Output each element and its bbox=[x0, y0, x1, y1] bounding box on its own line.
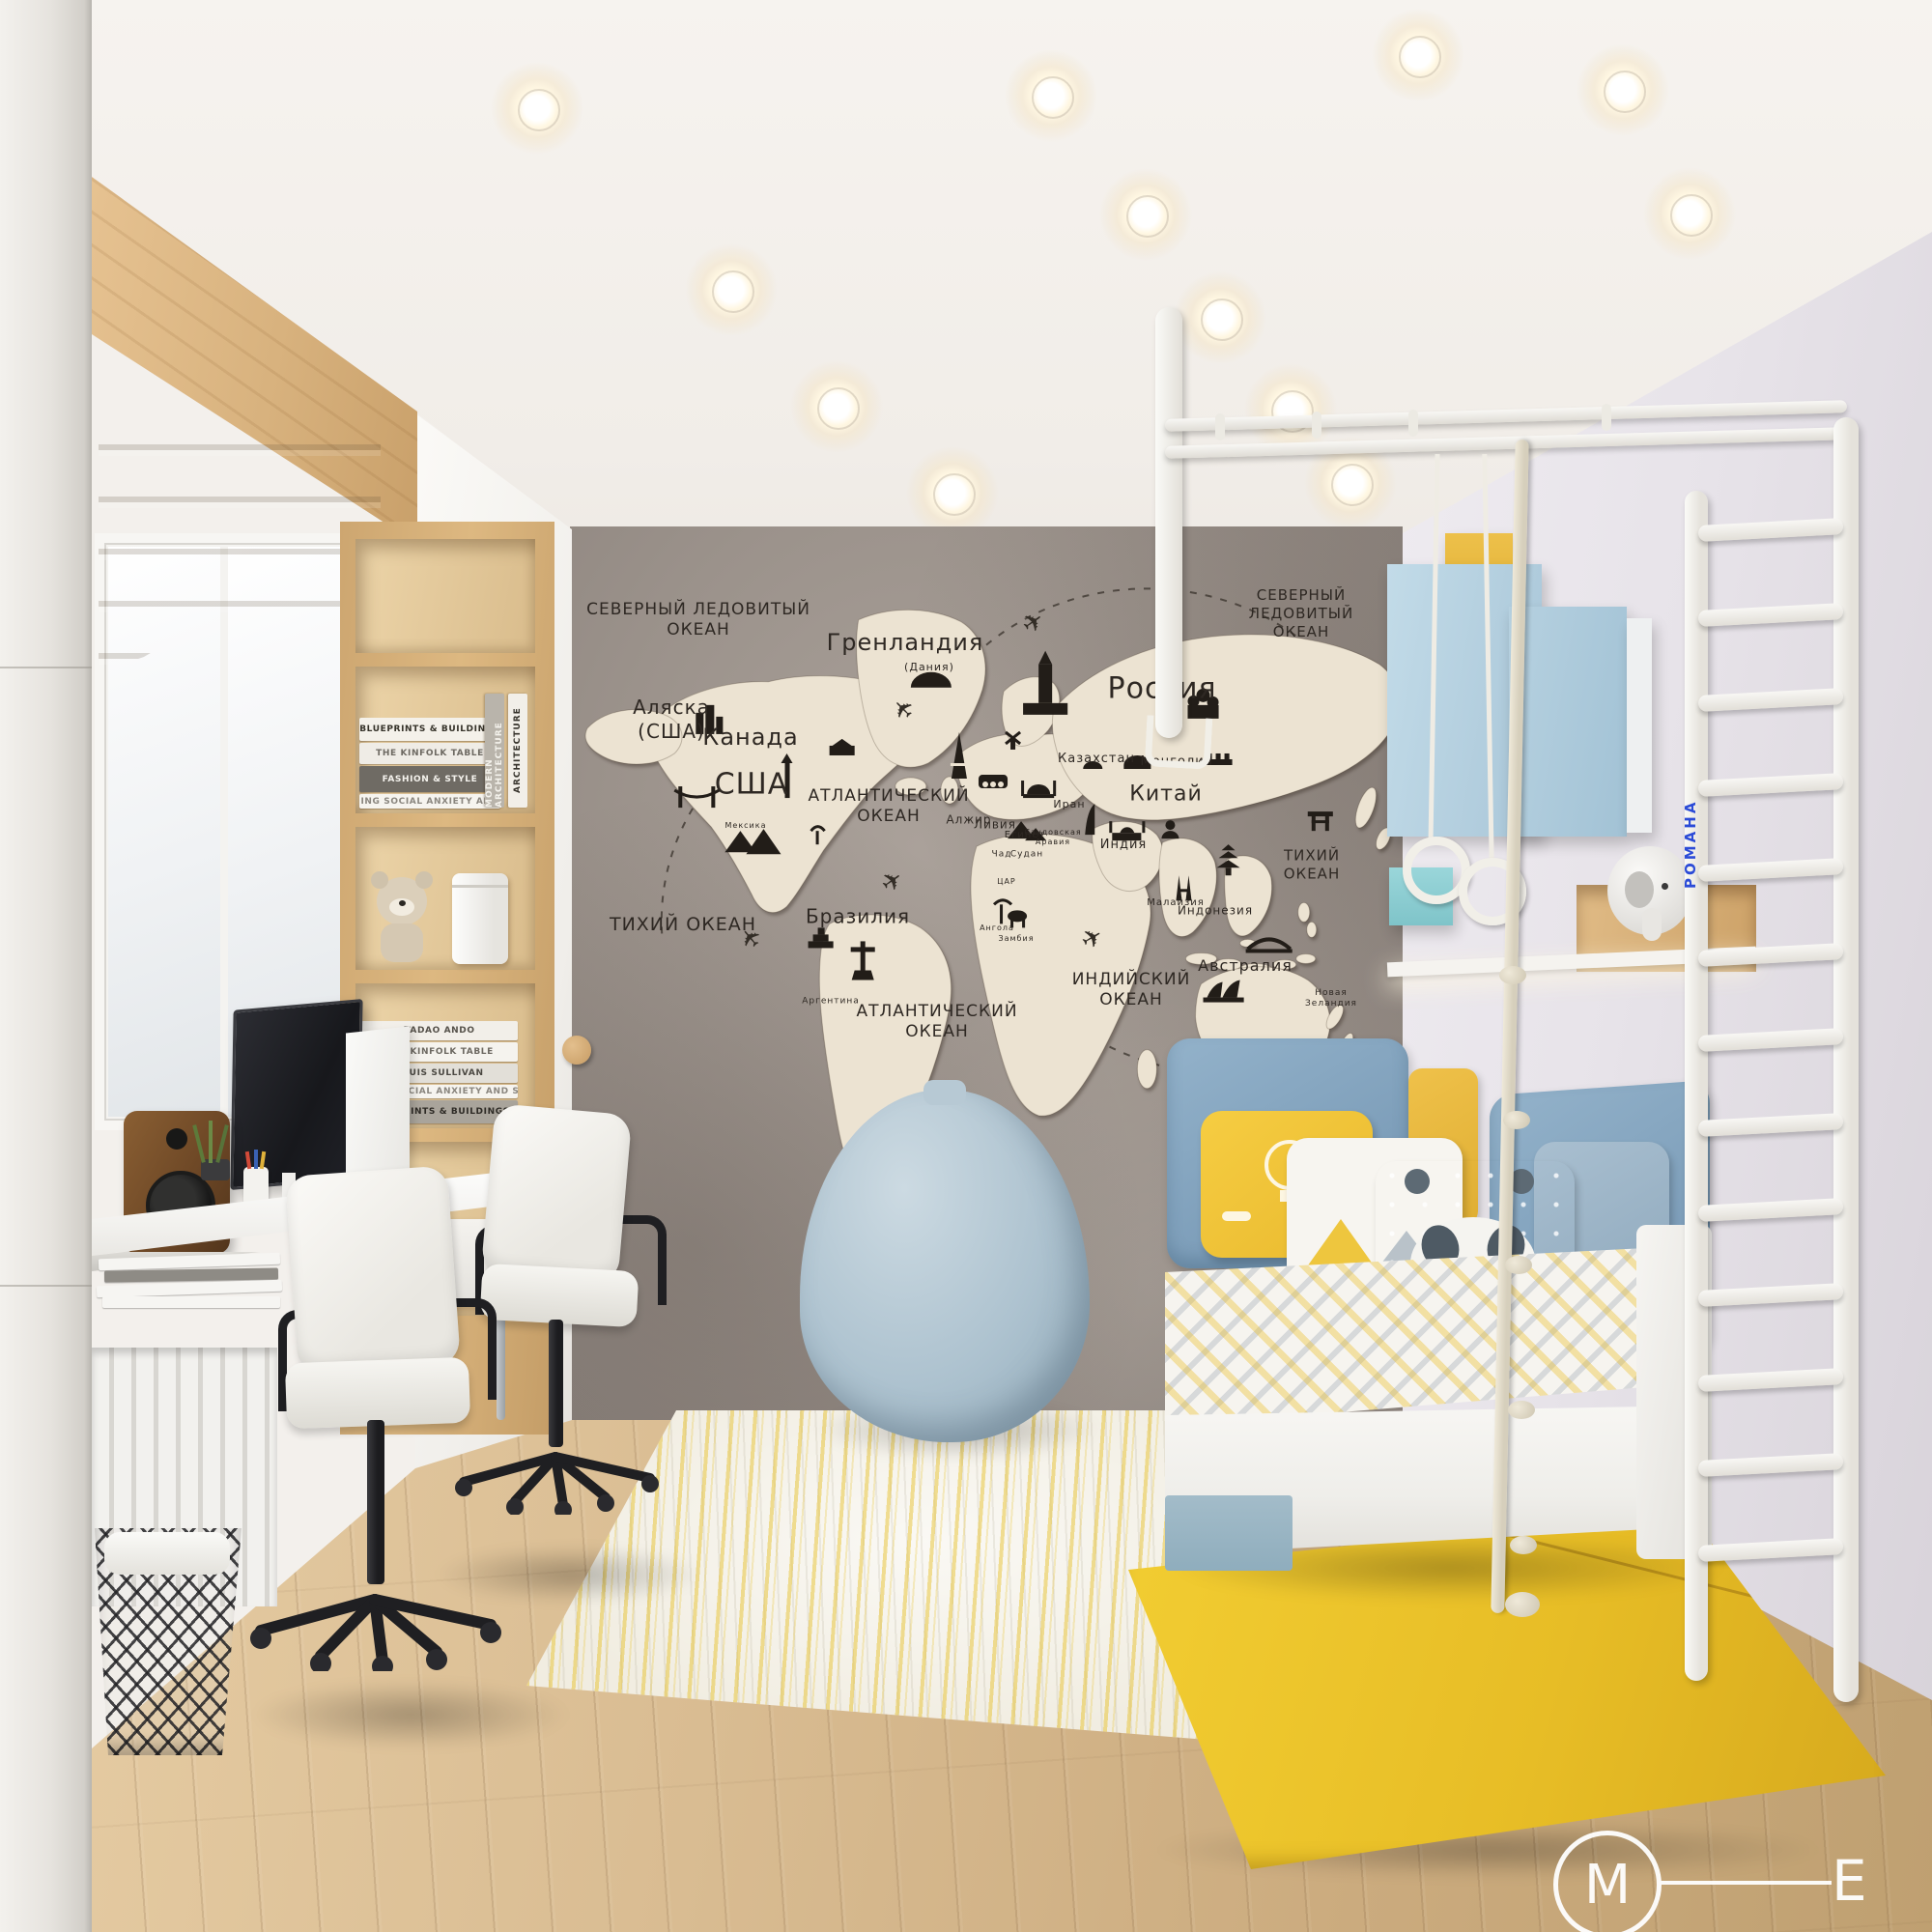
bear-body bbox=[381, 923, 423, 962]
map-label: (Дания) bbox=[904, 661, 954, 674]
scene: СЕВЕРНЫЙ ЛЕДОВИТЫЙ ОКЕАНСЕВЕРНЫЙ ЛЕДОВИТ… bbox=[0, 0, 1932, 1932]
chair-seat bbox=[480, 1264, 639, 1327]
cloud-motif bbox=[1222, 1211, 1251, 1221]
wardrobe-seam bbox=[0, 667, 92, 668]
map-label: ТИХИЙ ОКЕАН bbox=[610, 914, 756, 937]
map-label: ИНДИЙСКИЙ ОКЕАН bbox=[1072, 970, 1191, 1011]
ceiling-spotlight bbox=[1577, 43, 1669, 136]
map-label: Замбия bbox=[998, 934, 1034, 944]
round-canister bbox=[452, 873, 508, 964]
desk-plant bbox=[193, 1124, 236, 1180]
map-label: Судан bbox=[1010, 849, 1043, 860]
chair-seat bbox=[285, 1357, 470, 1430]
teddy-bear-toy bbox=[375, 877, 429, 966]
watermark-m: M bbox=[1584, 1854, 1631, 1917]
book-spine-vertical: MODERN ARCHITECTURE bbox=[485, 694, 504, 808]
cabinet-side-white bbox=[1627, 618, 1652, 833]
ladder-brand-label: РОМАНА bbox=[1682, 765, 1699, 889]
plant-leaf bbox=[209, 1121, 213, 1163]
ladder-rung bbox=[1698, 1453, 1844, 1477]
map-label: США bbox=[715, 766, 789, 803]
magazine bbox=[97, 1280, 282, 1298]
map-label: Гренландия bbox=[827, 628, 984, 657]
chair-column bbox=[549, 1320, 563, 1447]
map-label: Чад bbox=[992, 849, 1012, 860]
overhead-rung bbox=[1312, 412, 1321, 439]
ceiling-spotlight bbox=[906, 446, 999, 539]
airplane-icon: ✈ bbox=[1016, 605, 1050, 640]
ceiling-spotlight bbox=[1643, 167, 1736, 260]
plant-leaf bbox=[192, 1124, 206, 1163]
airplane-icon: ✈ bbox=[887, 691, 923, 726]
plant-leaf bbox=[215, 1124, 229, 1163]
overhead-rung bbox=[1408, 410, 1418, 437]
map-label: Китай bbox=[1129, 781, 1203, 808]
chair-backrest bbox=[481, 1103, 633, 1285]
watermark-e: E bbox=[1832, 1848, 1867, 1914]
ladder-rung bbox=[1698, 1368, 1844, 1392]
map-label: Аляска (США) bbox=[633, 696, 710, 744]
bear-nose bbox=[399, 900, 406, 906]
watermark-m-circle: M bbox=[1553, 1831, 1662, 1932]
airplane-icon: ✈ bbox=[875, 864, 909, 899]
ceiling-spotlight bbox=[1099, 168, 1192, 261]
raccoon-ear bbox=[1405, 1169, 1430, 1194]
book-spine-vertical: ARCHITECTURE bbox=[508, 694, 527, 808]
bookshelf-stack-top: BLUEPRINTS & BUILDINGSTHE KINFOLK TABLEF… bbox=[359, 717, 500, 810]
map-label: Индия bbox=[1100, 838, 1147, 853]
map-label: Мексика bbox=[725, 821, 767, 831]
gym-ceiling-pole bbox=[1155, 307, 1182, 738]
beanbag-knot bbox=[923, 1080, 966, 1105]
shelf-cavity bbox=[355, 827, 535, 970]
chair-base bbox=[440, 1437, 681, 1515]
ladder-rung bbox=[1698, 773, 1844, 797]
ladder-rungs bbox=[1698, 522, 1843, 1623]
map-label: Иран bbox=[1053, 798, 1085, 811]
chair-base bbox=[232, 1575, 522, 1671]
wire-basket bbox=[95, 1528, 241, 1755]
map-label: Аргентина bbox=[802, 996, 860, 1007]
ladder-rung bbox=[1698, 1113, 1844, 1137]
chair-shadow bbox=[251, 1681, 570, 1748]
map-label: ТИХИЙ ОКЕАН bbox=[1266, 846, 1357, 883]
ceiling-spotlight bbox=[1372, 9, 1464, 101]
magazine bbox=[102, 1296, 280, 1308]
map-label: СЕВЕРНЫЙ ЛЕДОВИТЫЙ ОКЕАН bbox=[1249, 586, 1353, 640]
ladder-rung bbox=[1698, 943, 1844, 967]
wooden-wall-hook bbox=[562, 1036, 591, 1065]
map-label: Новая Зеландия bbox=[1295, 988, 1367, 1010]
airplane-icon: ✈ bbox=[1076, 922, 1109, 957]
bed-drawer-blue bbox=[1165, 1495, 1293, 1571]
ceiling-spotlight bbox=[1005, 49, 1097, 142]
map-label: АТЛАНТИЧЕСКИЙ ОКЕАН bbox=[856, 1002, 1017, 1043]
map-label: Индонезия bbox=[1178, 904, 1253, 919]
rope-knot bbox=[1499, 966, 1526, 984]
ladder-rung bbox=[1698, 1198, 1844, 1222]
book-spine: OVERCOMING SOCIAL ANXIETY AND SHYNESS bbox=[359, 794, 500, 809]
overhead-rung bbox=[1215, 413, 1225, 440]
canister-lid-line bbox=[452, 885, 508, 888]
toy-eye bbox=[1662, 883, 1668, 890]
ladder-rung bbox=[1698, 688, 1844, 712]
ceiling-spotlight bbox=[491, 62, 583, 155]
ladder-rung bbox=[1698, 1283, 1844, 1307]
trapeze-handle bbox=[1145, 715, 1213, 769]
chair-column bbox=[367, 1420, 384, 1584]
bear-ear bbox=[371, 871, 388, 889]
toy-trunk bbox=[1642, 908, 1662, 941]
ceiling-spotlight bbox=[1174, 271, 1266, 364]
overhead-rung bbox=[1602, 404, 1611, 431]
ladder-rung bbox=[1698, 518, 1844, 542]
wardrobe bbox=[0, 0, 92, 1932]
desk-whiteboard bbox=[346, 1027, 410, 1177]
basket-liner bbox=[104, 1532, 230, 1575]
rope-knot bbox=[1505, 1256, 1532, 1274]
ladder-rung bbox=[1698, 1538, 1844, 1562]
book-spine: BLUEPRINTS & BUILDINGS bbox=[359, 718, 500, 741]
map-label: Ангола bbox=[980, 923, 1014, 933]
map-label: СЕВЕРНЫЙ ЛЕДОВИТЫЙ ОКЕАН bbox=[586, 600, 810, 641]
ladder-rung bbox=[1698, 603, 1844, 627]
ceiling-spotlight bbox=[685, 243, 778, 336]
book-spine: FASHION & STYLE bbox=[359, 766, 500, 792]
rope-end-knob bbox=[1505, 1592, 1540, 1617]
ladder-rung bbox=[1698, 1028, 1844, 1052]
map-label: Саудовская Аравия bbox=[1024, 828, 1081, 847]
cabinet-blue-right bbox=[1509, 607, 1627, 837]
map-label: Казахстан bbox=[1058, 752, 1135, 767]
ceiling-spotlight bbox=[790, 360, 883, 453]
rope-knot bbox=[1508, 1401, 1535, 1419]
rope-knot bbox=[1503, 1111, 1530, 1129]
map-label: Бразилия bbox=[806, 905, 910, 929]
map-label: Австралия bbox=[1198, 956, 1293, 976]
map-label: Канада bbox=[702, 723, 798, 752]
speaker-tweeter bbox=[166, 1128, 187, 1150]
pen bbox=[254, 1150, 258, 1169]
wardrobe-seam bbox=[0, 1285, 92, 1287]
plant-pot bbox=[201, 1159, 230, 1180]
map-label: ЦАР bbox=[997, 877, 1016, 887]
shelf-cavity bbox=[355, 539, 535, 653]
shelf-cavity: BLUEPRINTS & BUILDINGSTHE KINFOLK TABLEF… bbox=[355, 667, 535, 813]
chair-backrest bbox=[285, 1165, 461, 1375]
studio-watermark: M E bbox=[1553, 1831, 1882, 1932]
ladder-rung bbox=[1698, 858, 1844, 882]
book-spine: THE KINFOLK TABLE bbox=[359, 743, 500, 764]
bear-ear bbox=[415, 871, 433, 889]
toy-ear bbox=[1625, 871, 1654, 908]
rope-knot bbox=[1510, 1536, 1537, 1554]
watermark-line bbox=[1660, 1881, 1832, 1885]
